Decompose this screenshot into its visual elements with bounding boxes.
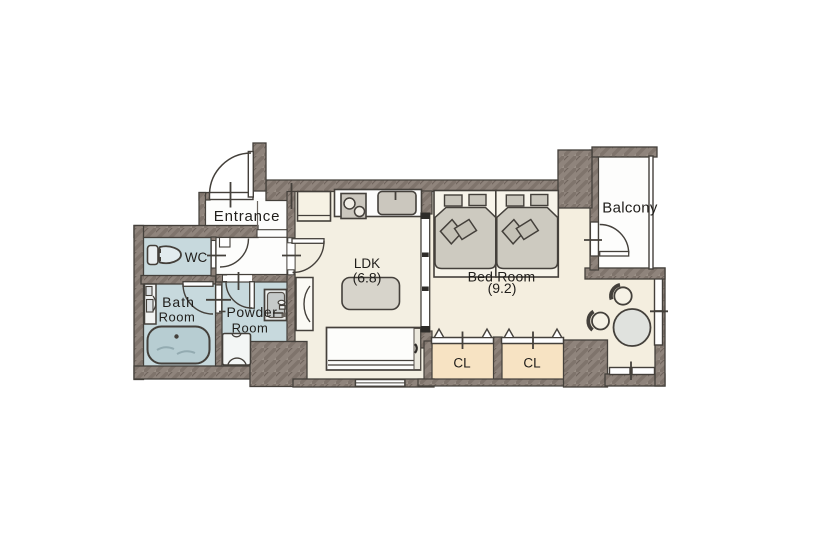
svg-text:WC: WC	[185, 250, 208, 265]
svg-text:Balcony: Balcony	[602, 200, 658, 217]
svg-text:(6.8): (6.8)	[353, 270, 382, 286]
svg-text:Room: Room	[159, 310, 196, 325]
svg-text:CL: CL	[453, 356, 471, 371]
svg-text:(9.2): (9.2)	[488, 280, 517, 296]
svg-text:Powder: Powder	[226, 304, 277, 320]
svg-text:Room: Room	[232, 321, 269, 336]
svg-text:CL: CL	[523, 356, 541, 371]
svg-text:Entrance: Entrance	[214, 208, 280, 225]
svg-text:Bath: Bath	[162, 294, 195, 310]
